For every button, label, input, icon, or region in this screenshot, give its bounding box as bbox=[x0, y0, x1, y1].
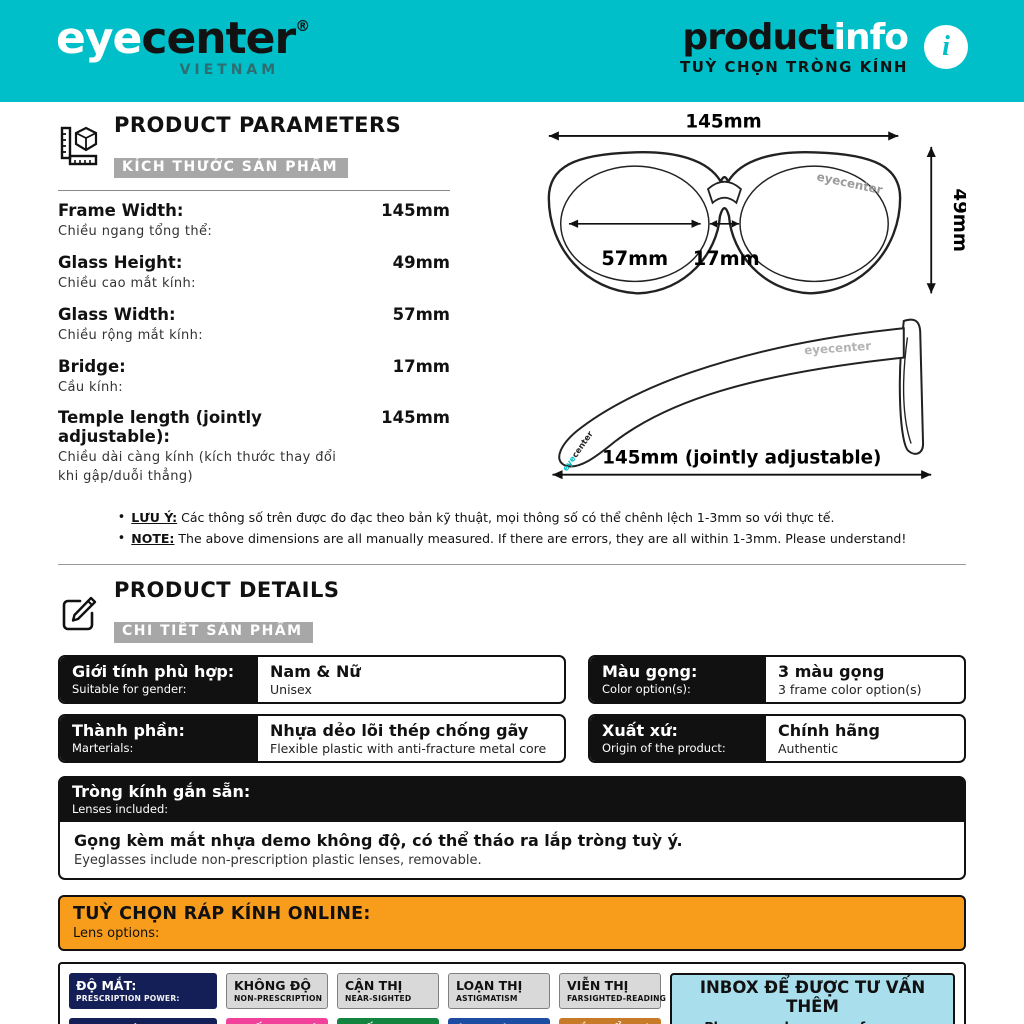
note-text: The above dimensions are all manually me… bbox=[178, 531, 906, 546]
param-label: Temple length (jointly adjustable): bbox=[58, 408, 368, 446]
parameters-subtitle: KÍCH THƯỚC SẢN PHẨM bbox=[114, 158, 348, 178]
detail-cell-origin: Xuất xứ:Origin of the product: Chính hãn… bbox=[588, 714, 966, 763]
inbox-subtitle: Please send message for more information bbox=[672, 1019, 953, 1024]
badge-uv400: CHỐNG UVUV400 LENSES bbox=[337, 1018, 439, 1024]
side-view-diagram: eyecenter eyecenter 145mm (jointly adjus… bbox=[536, 310, 966, 484]
badge-anti-scratch: CHỐNG XƯỚCANTI-SCRATCH LENSES bbox=[226, 1018, 328, 1024]
info-icon: i bbox=[924, 25, 968, 69]
details-grid: Giới tính phù hợp:Suitable for gender: N… bbox=[58, 655, 966, 763]
lens-options-badges: ĐỘ MẮT:PRESCRIPTION POWER: KHÔNG ĐỘNON-P… bbox=[58, 962, 966, 1024]
dim-lens-width-label: 57mm bbox=[601, 247, 668, 270]
product-info-title: productinfo TUỲ CHỌN TRÒNG KÍNH bbox=[680, 19, 908, 76]
dim-frame-width-label: 145mm bbox=[685, 114, 761, 133]
inbox-title: INBOX ĐỂ ĐƯỢC TƯ VẤN THÊM bbox=[672, 978, 953, 1016]
frame-outline bbox=[549, 152, 900, 293]
detail-cell-gender: Giới tính phù hợp:Suitable for gender: N… bbox=[58, 655, 566, 704]
ruler-box-icon bbox=[58, 124, 102, 168]
dim-bridge-label: 17mm bbox=[693, 247, 760, 270]
badge-farsighted-reading: VIỄN THỊFARSIGHTED-READING bbox=[559, 973, 661, 1009]
param-label: Frame Width: bbox=[58, 201, 184, 220]
lens-options-title: TUỲ CHỌN RÁP KÍNH ONLINE: bbox=[73, 904, 951, 924]
note-label: NOTE: bbox=[131, 531, 174, 546]
badge-astigmatism: LOẠN THỊASTIGMATISM bbox=[448, 973, 550, 1009]
note-text: Các thông số trên được đo đạc theo bản k… bbox=[181, 510, 834, 525]
logo-country: VIETNAM bbox=[56, 63, 309, 77]
product-parameters-section: PRODUCT PARAMETERS KÍCH THƯỚC SẢN PHẨM F… bbox=[58, 114, 966, 498]
param-row-glass-width: Glass Width:57mm Chiều rộng mắt kính: bbox=[58, 305, 450, 346]
lenses-label-en: Lenses included: bbox=[72, 802, 952, 816]
eyecenter-logo: eyecenter® VIETNAM bbox=[56, 17, 309, 77]
logo-center: center bbox=[141, 13, 295, 64]
lenses-value-en: Eyeglasses include non-prescription plas… bbox=[74, 853, 950, 868]
param-row-temple-length: Temple length (jointly adjustable):145mm… bbox=[58, 408, 450, 487]
badge-photochromic: MẮT ĐỔI MÀUPHOTOCHROMIC LENSES bbox=[559, 1018, 661, 1024]
note-label: LƯU Ý: bbox=[131, 510, 177, 525]
dim-temple-length-label: 145mm (jointly adjustable) bbox=[602, 447, 881, 468]
logo-eye: eye bbox=[56, 13, 141, 64]
registered-mark-icon: ® bbox=[295, 17, 309, 35]
inbox-box: INBOX ĐỂ ĐƯỢC TƯ VẤN THÊM Please send me… bbox=[670, 973, 955, 1024]
productinfo-black: product bbox=[682, 17, 833, 58]
param-label-vi: Chiều cao mắt kính: bbox=[58, 275, 358, 294]
param-label-vi: Chiều dài càng kính (kích thước thay đổi… bbox=[58, 449, 358, 487]
note-item: •LƯU Ý: Các thông số trên được đo đạc th… bbox=[118, 508, 907, 529]
badge-prescription-power: ĐỘ MẮT:PRESCRIPTION POWER: bbox=[69, 973, 217, 1009]
logo-wordmark: eyecenter® bbox=[56, 17, 309, 61]
front-view-diagram: 145mm 57mm 17mm eyecenter 49mm bbox=[536, 114, 966, 302]
param-value: 49mm bbox=[393, 253, 450, 272]
detail-cell-materials: Thành phần:Marterials: Nhựa dẻo lõi thép… bbox=[58, 714, 566, 763]
badge-bluecontrol: ÁNH SÁNG XANHBLUECONTROL LENSES bbox=[448, 1018, 550, 1024]
param-value: 57mm bbox=[393, 305, 450, 324]
param-value: 145mm bbox=[381, 408, 450, 427]
header: eyecenter® VIETNAM productinfo TUỲ CHỌN … bbox=[0, 0, 1024, 102]
lens-options-header: TUỲ CHỌN RÁP KÍNH ONLINE: Lens options: bbox=[58, 895, 966, 951]
badge-non-prescription: KHÔNG ĐỘNON-PRESCRIPTION bbox=[226, 973, 328, 1009]
lenses-included: Tròng kính gắn sẵn: Lenses included: Gọn… bbox=[58, 776, 966, 880]
param-value: 145mm bbox=[381, 201, 450, 220]
param-value: 17mm bbox=[393, 357, 450, 376]
details-title: PRODUCT DETAILS bbox=[114, 579, 340, 602]
detail-cell-colors: Màu gọng:Color option(s): 3 màu gọng3 fr… bbox=[588, 655, 966, 704]
product-details-section: PRODUCT DETAILS CHI TIẾT SẢN PHẨM Giới t… bbox=[58, 564, 966, 1024]
details-subtitle: CHI TIẾT SẢN PHẨM bbox=[114, 622, 313, 642]
lens-options-subtitle: Lens options: bbox=[73, 926, 951, 941]
badge-near-sighted: CẬN THỊNEAR-SIGHTED bbox=[337, 973, 439, 1009]
param-row-glass-height: Glass Height:49mm Chiều cao mắt kính: bbox=[58, 253, 450, 294]
param-label-vi: Chiều rộng mắt kính: bbox=[58, 327, 358, 346]
param-label-vi: Cầu kính: bbox=[58, 379, 358, 398]
productinfo-white: info bbox=[834, 17, 908, 58]
parameters-title: PRODUCT PARAMETERS bbox=[114, 114, 401, 137]
note-item: •NOTE: The above dimensions are all manu… bbox=[118, 529, 907, 550]
measurement-notes: •LƯU Ý: Các thông số trên được đo đạc th… bbox=[118, 508, 907, 550]
dim-frame-height-label: 49mm bbox=[949, 188, 966, 252]
param-label: Glass Height: bbox=[58, 253, 182, 272]
badge-lens-options: LOẠI TRÒNG:LENS OPTIONS: bbox=[69, 1018, 217, 1024]
param-label-vi: Chiều ngang tổng thể: bbox=[58, 223, 358, 242]
param-label: Bridge: bbox=[58, 357, 126, 376]
param-label: Glass Width: bbox=[58, 305, 176, 324]
lenses-label-vi: Tròng kính gắn sẵn: bbox=[72, 782, 952, 801]
param-row-frame-width: Frame Width:145mm Chiều ngang tổng thể: bbox=[58, 201, 450, 242]
lenses-value-vi: Gọng kèm mắt nhựa demo không độ, có thể … bbox=[74, 831, 950, 850]
divider bbox=[58, 190, 450, 191]
pencil-icon bbox=[58, 589, 102, 633]
param-row-bridge: Bridge:17mm Cầu kính: bbox=[58, 357, 450, 398]
header-subtitle: TUỲ CHỌN TRÒNG KÍNH bbox=[680, 60, 908, 76]
